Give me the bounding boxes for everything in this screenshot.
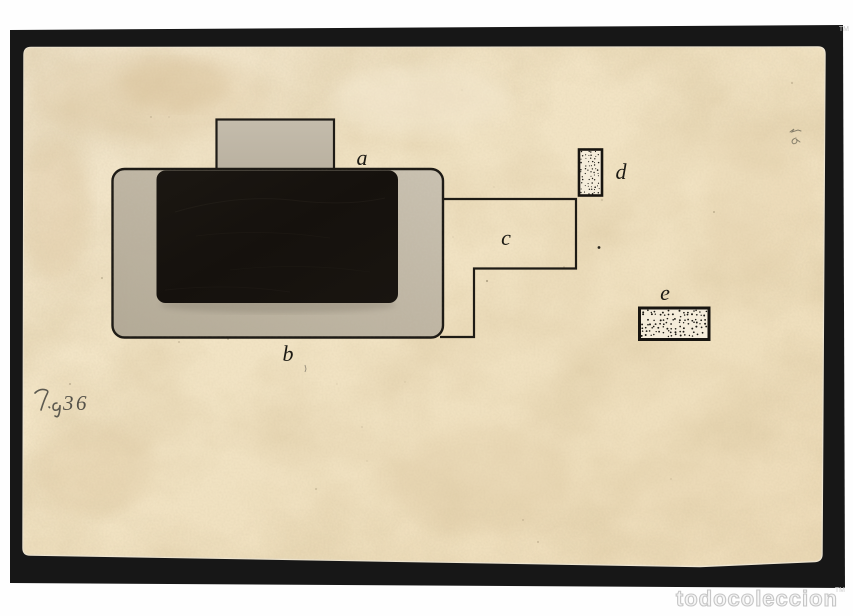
svg-text:b: b (283, 341, 294, 366)
svg-text:6: 6 (76, 391, 87, 415)
svg-text:3: 3 (62, 391, 74, 415)
svg-text:todocoleccion: todocoleccion (676, 586, 838, 611)
svg-text:TM: TM (839, 26, 849, 33)
svg-text:TM: TM (835, 587, 845, 594)
svg-text:c: c (501, 225, 511, 250)
svg-text:a: a (357, 145, 368, 170)
svg-text:e: e (660, 280, 670, 305)
svg-text:d: d (616, 159, 628, 184)
